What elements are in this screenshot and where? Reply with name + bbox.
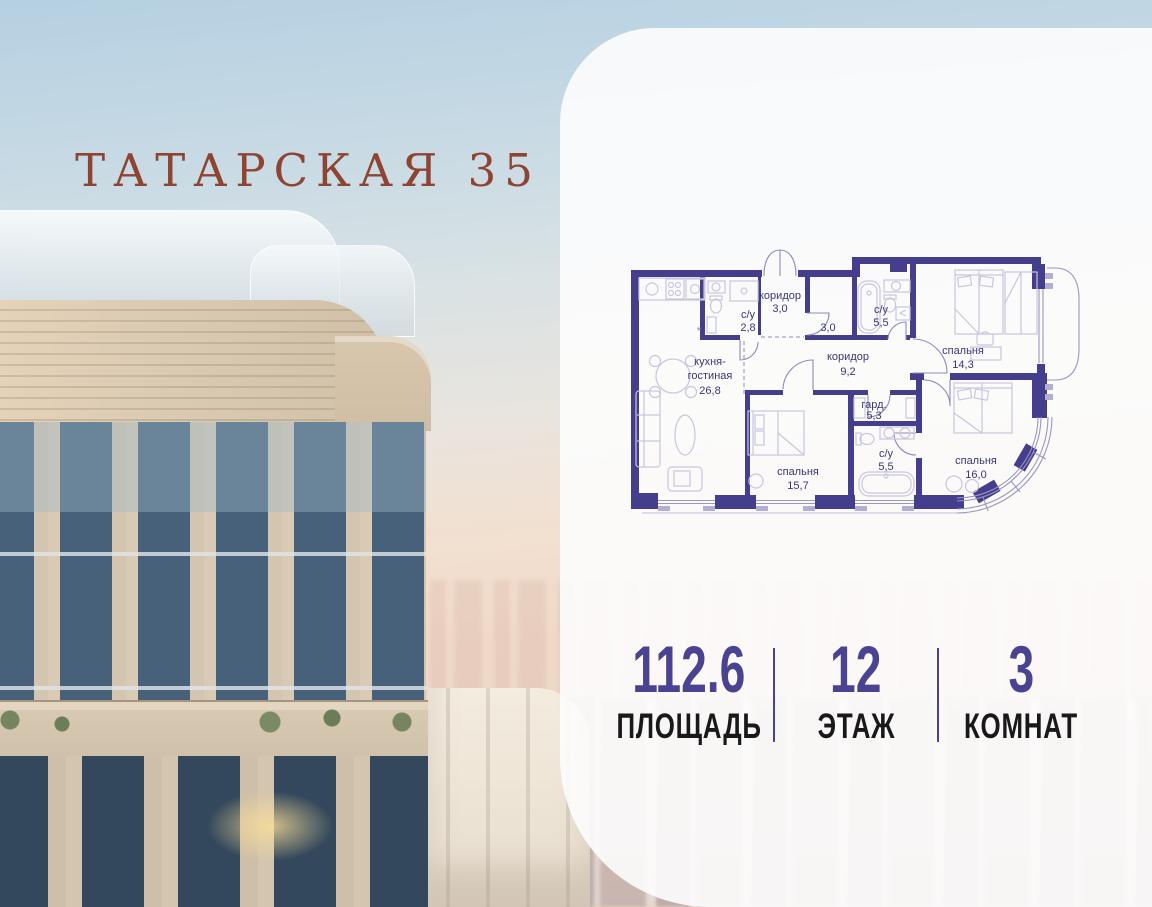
- label-bedroom-3: спальня: [955, 455, 997, 467]
- label-bedroom-2-area: 15,7: [787, 480, 808, 492]
- label-bathroom-2: с/у: [874, 304, 889, 316]
- apartment-stats: 112.6 ПЛОЩАДЬ 12 ЭТАЖ 3 КОМНАТ: [560, 640, 1152, 780]
- label-bedroom-1: спальня: [942, 345, 984, 357]
- stat-rooms: 3 КОМНАТ: [911, 640, 1131, 743]
- label-entry-corridor: коридор: [759, 290, 801, 302]
- label-corridor-area: 9,2: [840, 366, 855, 378]
- label-bathroom-1: с/у: [741, 309, 756, 321]
- info-card: *: [560, 28, 1152, 907]
- label-bedroom-2: спальня: [777, 466, 819, 478]
- label-bathroom-3-area: 5,5: [878, 461, 893, 473]
- label-bathroom-1-area: 2,8: [740, 322, 755, 334]
- stat-floor-value: 12: [830, 640, 881, 698]
- label-bathroom-3: с/у: [879, 448, 894, 460]
- stat-floor-label: ЭТАЖ: [817, 710, 895, 743]
- label-bedroom-3-area: 16,0: [965, 469, 986, 481]
- listing-flyer: ТАТАРСКАЯ 35: [0, 0, 1152, 907]
- label-bedroom-1-area: 14,3: [952, 359, 973, 371]
- label-kitchen-area: 26,8: [699, 385, 720, 397]
- svg-text:*: *: [697, 324, 702, 338]
- label-entry-corridor-area: 3,0: [772, 303, 787, 315]
- label-kitchen-2: гостиная: [688, 370, 733, 382]
- stone-crown-band-2: [335, 336, 431, 431]
- lower-floors: [0, 756, 490, 907]
- furniture-kitchen: *: [636, 278, 705, 491]
- terrace-with-plants: [0, 700, 452, 760]
- stat-rooms-value: 3: [1008, 640, 1034, 698]
- stat-rooms-label: КОМНАТ: [964, 710, 1078, 743]
- label-bathroom-2-area: 5,5: [873, 317, 888, 329]
- label-corridor: коридор: [827, 351, 869, 363]
- label-storage-area: 3,0: [820, 322, 835, 334]
- floor-plan: *: [628, 243, 1090, 528]
- project-title: ТАТАРСКАЯ 35: [58, 144, 558, 197]
- stat-area-label: ПЛОЩАДЬ: [616, 710, 761, 743]
- label-kitchen-1: кухня-: [694, 356, 726, 368]
- glass-facade: [0, 422, 426, 716]
- label-wardrobe-area: 5,3: [866, 410, 881, 422]
- stat-area-value: 112.6: [632, 640, 745, 698]
- stone-crown-band: [0, 300, 385, 426]
